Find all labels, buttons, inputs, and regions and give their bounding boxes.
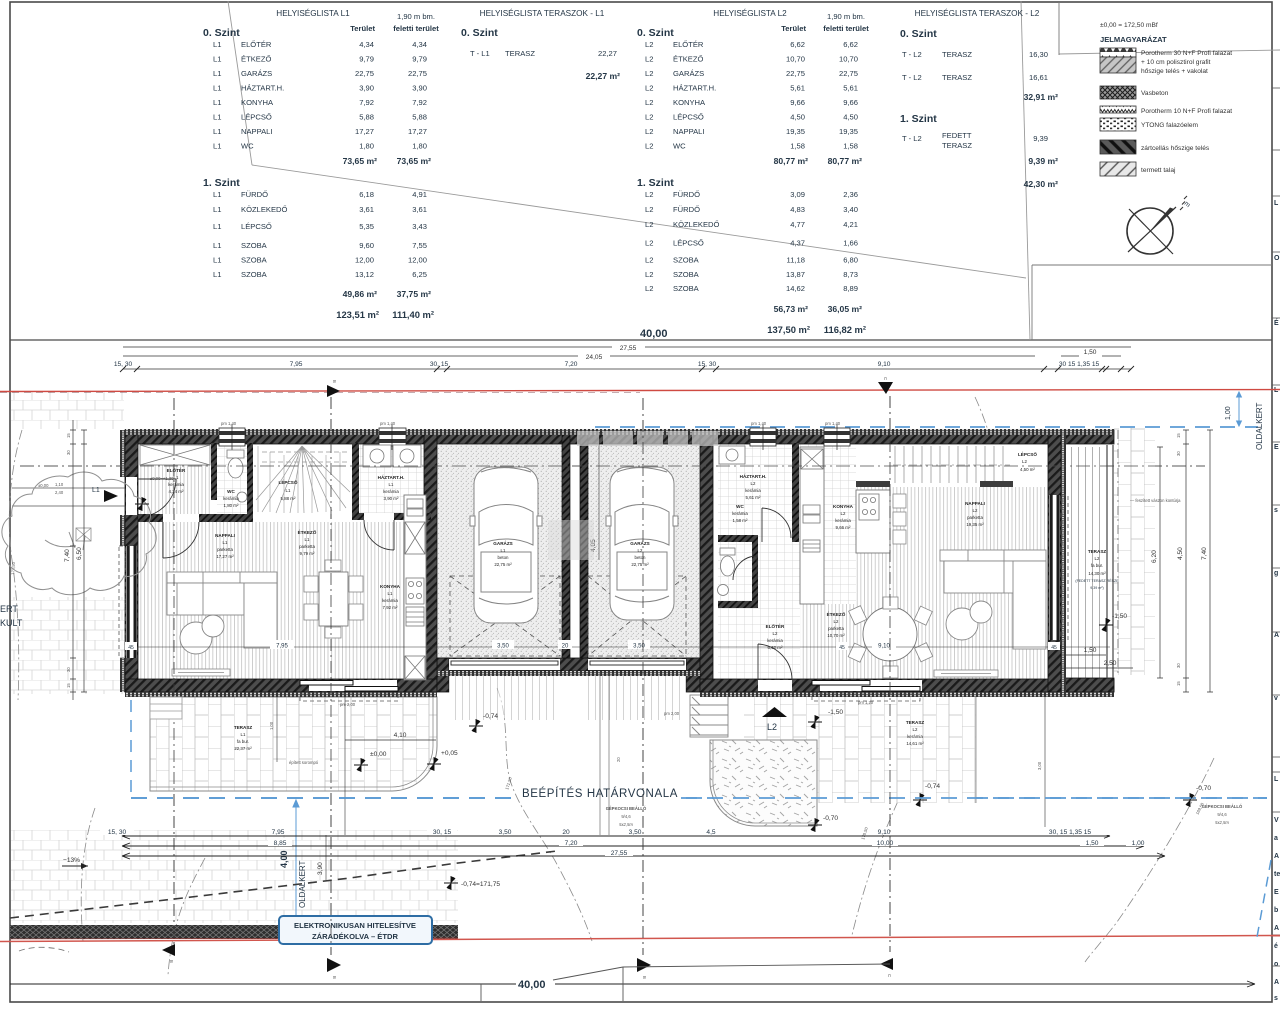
- svg-text:17,27: 17,27: [355, 127, 374, 136]
- svg-text:4,37: 4,37: [790, 239, 805, 248]
- svg-text:7,92: 7,92: [359, 98, 374, 107]
- svg-text:12,00: 12,00: [408, 256, 427, 265]
- svg-text:15: 15: [1176, 433, 1181, 438]
- svg-text:0. Szint: 0. Szint: [461, 27, 498, 39]
- svg-text:SZOBA: SZOBA: [241, 270, 268, 279]
- svg-text:22,75: 22,75: [408, 69, 427, 78]
- svg-text:20: 20: [562, 829, 570, 836]
- svg-text:4,83: 4,83: [790, 205, 805, 214]
- svg-text:TERASZ: TERASZ: [942, 141, 972, 150]
- svg-text:-1,50: -1,50: [828, 709, 843, 716]
- svg-text:L2: L2: [645, 190, 653, 199]
- svg-text:V: V: [1274, 817, 1279, 824]
- svg-text:73,65 m²: 73,65 m²: [343, 156, 378, 166]
- svg-text:3,09: 3,09: [790, 190, 805, 199]
- svg-text:137,50 m²: 137,50 m²: [767, 324, 810, 335]
- svg-text:30, 15: 30, 15: [433, 829, 452, 836]
- svg-text:4,21: 4,21: [843, 220, 858, 229]
- svg-text:15: 15: [66, 683, 71, 688]
- svg-text:L2: L2: [645, 84, 653, 93]
- svg-text:É: É: [1274, 318, 1279, 327]
- svg-text:LÉPCSŐ: LÉPCSŐ: [673, 239, 704, 248]
- svg-text:OLDALKERT: OLDALKERT: [1255, 402, 1264, 450]
- svg-text:s: s: [1274, 995, 1278, 1002]
- svg-text:L2: L2: [1095, 556, 1100, 561]
- svg-text:TERASZ: TERASZ: [942, 73, 972, 82]
- svg-text:LÉPCSŐ: LÉPCSŐ: [1018, 450, 1037, 457]
- svg-text:0. Szint: 0. Szint: [203, 27, 240, 39]
- svg-text:22,37 m²: 22,37 m²: [234, 746, 252, 751]
- svg-text:L2: L2: [1022, 459, 1027, 464]
- svg-text:L1: L1: [305, 537, 310, 542]
- svg-text:4,34 m²: 4,34 m²: [169, 489, 184, 494]
- svg-text:9,60: 9,60: [359, 241, 374, 250]
- svg-text:YTONG falazóelem: YTONG falazóelem: [1141, 122, 1199, 129]
- svg-text:20: 20: [562, 644, 569, 650]
- svg-text:9,66: 9,66: [790, 98, 805, 107]
- svg-text:6,62: 6,62: [790, 40, 805, 49]
- svg-text:4,50: 4,50: [790, 113, 805, 122]
- svg-text:Terület: Terület: [781, 24, 806, 33]
- svg-text:Vasbeton: Vasbeton: [1141, 90, 1169, 97]
- svg-text:NAPPALI: NAPPALI: [673, 127, 705, 136]
- svg-text:5,61 m²: 5,61 m²: [746, 495, 761, 500]
- svg-text:parketta: parketta: [828, 626, 844, 631]
- svg-text:ÉTKEZŐ: ÉTKEZŐ: [298, 528, 317, 535]
- svg-text:T - L2: T - L2: [902, 134, 922, 143]
- svg-text:8,73: 8,73: [843, 270, 858, 279]
- svg-text:L1: L1: [389, 482, 394, 487]
- svg-text:parketta: parketta: [217, 547, 233, 552]
- svg-text:49,86 m²: 49,86 m²: [343, 289, 378, 299]
- svg-text:+0,05: +0,05: [441, 750, 458, 757]
- svg-text:4,34: 4,34: [359, 40, 374, 49]
- svg-text:pm 2,00: pm 2,00: [664, 711, 680, 716]
- svg-text:15, 30: 15, 30: [108, 829, 127, 836]
- svg-text:Terület: Terület: [350, 24, 375, 33]
- svg-text:C: C: [887, 974, 892, 977]
- svg-text:42,30 m²: 42,30 m²: [1024, 179, 1059, 189]
- svg-text:4,34: 4,34: [412, 40, 427, 49]
- svg-text:1,80: 1,80: [412, 142, 427, 151]
- svg-text:L2: L2: [645, 69, 653, 78]
- svg-text:16,30: 16,30: [1029, 50, 1048, 59]
- svg-text:A: A: [1274, 979, 1279, 986]
- svg-text:14,62: 14,62: [786, 284, 805, 293]
- svg-text:9/4,6: 9/4,6: [621, 814, 631, 819]
- svg-text:KONYHA: KONYHA: [833, 504, 854, 509]
- svg-text:3,61: 3,61: [412, 205, 427, 214]
- svg-text:T - L2: T - L2: [902, 73, 922, 82]
- svg-text:3,90: 3,90: [359, 84, 374, 93]
- svg-text:5,88 m²: 5,88 m²: [281, 496, 296, 501]
- svg-text:7,92: 7,92: [412, 98, 427, 107]
- svg-text:L1: L1: [213, 142, 221, 151]
- svg-text:5,61: 5,61: [790, 84, 805, 93]
- svg-text:45: 45: [839, 645, 845, 651]
- svg-text:1,58 m²: 1,58 m²: [733, 518, 748, 523]
- svg-text:SZOBA: SZOBA: [241, 241, 268, 250]
- svg-text:B: B: [332, 976, 337, 979]
- svg-text:L2: L2: [645, 127, 653, 136]
- svg-text:27,55: 27,55: [620, 345, 637, 352]
- svg-text:123,51 m²: 123,51 m²: [336, 309, 379, 320]
- svg-text:TERASZ: TERASZ: [1088, 549, 1107, 554]
- svg-text:kerámia: kerámia: [732, 511, 748, 516]
- svg-text:ÉTKEZŐ: ÉTKEZŐ: [827, 610, 846, 617]
- svg-text:13,87: 13,87: [786, 270, 805, 279]
- svg-text:1,00: 1,00: [269, 721, 274, 730]
- svg-text:−13%: −13%: [63, 857, 80, 864]
- svg-text:L1: L1: [241, 732, 246, 737]
- svg-text:3,90: 3,90: [412, 84, 427, 93]
- svg-text:12,00: 12,00: [355, 256, 374, 265]
- svg-text:L1: L1: [213, 270, 221, 279]
- svg-text:L2: L2: [751, 481, 756, 486]
- svg-text:10,70: 10,70: [786, 55, 805, 64]
- svg-text:8,89: 8,89: [843, 284, 858, 293]
- svg-text:3,40: 3,40: [843, 205, 858, 214]
- svg-text:ELEKTRONIKUSAN HITELESÍTVE: ELEKTRONIKUSAN HITELESÍTVE: [294, 921, 416, 930]
- svg-text:5,88: 5,88: [359, 113, 374, 122]
- svg-text:45: 45: [128, 645, 134, 651]
- svg-text:4,77: 4,77: [790, 220, 805, 229]
- svg-text:kerámia: kerámia: [835, 518, 851, 523]
- svg-text:JELMAGYARÁZAT: JELMAGYARÁZAT: [1100, 35, 1167, 44]
- svg-text:ELŐTÉR: ELŐTÉR: [167, 466, 186, 473]
- svg-text:80,77 m²: 80,77 m²: [828, 156, 863, 166]
- svg-text:g: g: [1274, 570, 1278, 577]
- svg-text:L2: L2: [973, 508, 978, 513]
- svg-text:L2: L2: [645, 220, 653, 229]
- svg-text:16,61: 16,61: [1029, 73, 1048, 82]
- svg-text:6,50: 6,50: [76, 547, 83, 560]
- svg-text:L2: L2: [841, 511, 846, 516]
- svg-text:9/4,6: 9/4,6: [1217, 812, 1227, 817]
- svg-text:-0,74=171,75: -0,74=171,75: [461, 881, 500, 888]
- svg-text:GARÁZS: GARÁZS: [630, 540, 649, 546]
- svg-text:30 15 1,35 15: 30 15 1,35 15: [1059, 361, 1100, 368]
- svg-text:SZOBA: SZOBA: [673, 270, 700, 279]
- svg-text:T - L2: T - L2: [902, 50, 922, 59]
- svg-text:9,79: 9,79: [412, 55, 427, 64]
- svg-text:3,90 m²: 3,90 m²: [384, 496, 399, 501]
- svg-text:111,40 m²: 111,40 m²: [392, 309, 434, 320]
- svg-text:6,62: 6,62: [843, 40, 858, 49]
- svg-text:parketta: parketta: [299, 544, 315, 549]
- svg-text:L1: L1: [213, 84, 221, 93]
- svg-text:Porotherm 30 N+F Profi falazat: Porotherm 30 N+F Profi falazat: [1141, 50, 1232, 57]
- svg-text:L1: L1: [286, 488, 291, 493]
- svg-text:1,00: 1,00: [1132, 840, 1145, 847]
- svg-text:s: s: [1274, 507, 1278, 514]
- svg-text:KULT: KULT: [0, 618, 23, 628]
- svg-text:KONYHA: KONYHA: [673, 98, 706, 107]
- svg-text:TERASZ: TERASZ: [234, 725, 253, 730]
- svg-text:feletti terület: feletti terület: [393, 24, 439, 33]
- svg-text:3,50: 3,50: [629, 829, 642, 836]
- svg-text:L1: L1: [213, 113, 221, 122]
- svg-text:L2: L2: [645, 113, 653, 122]
- svg-text:kerámia: kerámia: [383, 489, 399, 494]
- svg-text:56,73 m²: 56,73 m²: [774, 304, 809, 314]
- svg-text:SZOBA: SZOBA: [673, 284, 700, 293]
- svg-text:te: te: [1274, 871, 1280, 878]
- svg-text:22,27 m²: 22,27 m²: [586, 71, 621, 81]
- svg-text:4,10: 4,10: [394, 732, 407, 739]
- svg-text:HELYISÉGLISTA TERASZOK - L2: HELYISÉGLISTA TERASZOK - L2: [915, 8, 1040, 18]
- svg-text:9,66: 9,66: [843, 98, 858, 107]
- svg-text:1. Szint: 1. Szint: [900, 113, 937, 125]
- svg-text:15: 15: [66, 433, 71, 438]
- svg-text:SZOBA: SZOBA: [241, 256, 268, 265]
- svg-text:7,20: 7,20: [565, 840, 578, 847]
- svg-text:5x2,5m: 5x2,5m: [619, 822, 633, 827]
- svg-text:A: A: [1274, 632, 1279, 639]
- svg-text:±0,00: ±0,00: [38, 483, 49, 488]
- svg-text:1,58: 1,58: [790, 142, 805, 151]
- svg-text:T - L1: T - L1: [470, 49, 490, 58]
- svg-text:GARÁZS: GARÁZS: [241, 69, 272, 78]
- svg-text:ERT: ERT: [0, 604, 18, 614]
- svg-text:kerámia: kerámia: [382, 598, 398, 603]
- svg-text:termett talaj: termett talaj: [1141, 167, 1176, 174]
- svg-text:pm 1,40: pm 1,40: [751, 421, 767, 426]
- svg-text:NAPPALI: NAPPALI: [241, 127, 273, 136]
- svg-text:L: L: [1274, 387, 1279, 394]
- svg-text:ÉTKEZŐ: ÉTKEZŐ: [241, 55, 271, 64]
- svg-text:kerámia: kerámia: [745, 488, 761, 493]
- svg-text:9,66 m²: 9,66 m²: [836, 525, 851, 530]
- svg-text:L2: L2: [645, 40, 653, 49]
- svg-text:1,90 m bm.: 1,90 m bm.: [827, 12, 865, 21]
- svg-text:KÖZLEKEDŐ: KÖZLEKEDŐ: [673, 220, 720, 229]
- svg-text:é: é: [1274, 943, 1278, 950]
- svg-text:L2: L2: [645, 284, 653, 293]
- svg-text:kerámia: kerámia: [907, 734, 923, 739]
- svg-text:KONYHA: KONYHA: [380, 584, 401, 589]
- svg-text:beton: beton: [635, 555, 647, 560]
- svg-text:22,75: 22,75: [355, 69, 374, 78]
- svg-text:15, 30: 15, 30: [698, 361, 717, 368]
- svg-text:FÜRDŐ: FÜRDŐ: [241, 190, 268, 199]
- svg-text:4,5: 4,5: [706, 829, 715, 836]
- svg-text:15, 30: 15, 30: [114, 361, 133, 368]
- svg-text:17,27: 17,27: [408, 127, 427, 136]
- svg-text:pm 1,40: pm 1,40: [825, 421, 841, 426]
- svg-text:E: E: [1274, 444, 1279, 451]
- svg-text:22,75 m²: 22,75 m²: [494, 562, 512, 567]
- svg-text:HELYISÉGLISTA L1: HELYISÉGLISTA L1: [276, 8, 350, 18]
- svg-text:19,35 m²: 19,35 m²: [966, 522, 984, 527]
- svg-text:b: b: [1274, 907, 1278, 914]
- svg-text:WC: WC: [673, 142, 686, 151]
- svg-text:10,00: 10,00: [877, 840, 894, 847]
- svg-text:9,39 m²): 9,39 m²): [1090, 586, 1103, 590]
- svg-text:FÜRDŐ: FÜRDŐ: [673, 205, 700, 214]
- svg-text:±0,00=+1,30: ±0,00=+1,30: [150, 476, 174, 481]
- svg-text:1,00: 1,00: [1225, 406, 1232, 420]
- svg-text:+ 10 cm polisztirol grafit: + 10 cm polisztirol grafit: [1141, 59, 1211, 66]
- svg-text:HELYISÉGLISTA L2: HELYISÉGLISTA L2: [713, 8, 787, 18]
- svg-text:1,66: 1,66: [843, 239, 858, 248]
- svg-text:3,50: 3,50: [633, 644, 645, 650]
- svg-text:L2: L2: [645, 270, 653, 279]
- svg-text:30: 30: [66, 450, 71, 455]
- svg-text:L1: L1: [213, 205, 221, 214]
- svg-text:40,00: 40,00: [518, 979, 546, 991]
- svg-text:7,40: 7,40: [1201, 547, 1208, 560]
- svg-text:14,30 m²: 14,30 m²: [1088, 571, 1106, 576]
- svg-text:pm 1,20: pm 1,20: [858, 700, 874, 705]
- svg-text:3,43: 3,43: [412, 222, 427, 231]
- svg-text:80,77 m²: 80,77 m²: [774, 156, 809, 166]
- svg-text:2,40: 2,40: [55, 490, 64, 495]
- svg-text:ELŐTÉR: ELŐTÉR: [241, 40, 272, 49]
- svg-text:7,40: 7,40: [64, 549, 71, 562]
- svg-text:NAPPALI: NAPPALI: [965, 501, 985, 506]
- svg-text:8,85: 8,85: [274, 840, 287, 847]
- svg-text:GÉPKOCSI BEÁLLÓ: GÉPKOCSI BEÁLLÓ: [606, 806, 647, 811]
- svg-text:NAPPALI: NAPPALI: [215, 533, 235, 538]
- svg-text:L1: L1: [213, 256, 221, 265]
- svg-text:— feszített vászon kontúrja: — feszített vászon kontúrja: [1130, 498, 1181, 503]
- svg-text:LÉPCSŐ: LÉPCSŐ: [241, 113, 272, 122]
- svg-text:1. Szint: 1. Szint: [203, 177, 240, 189]
- svg-text:0. Szint: 0. Szint: [637, 27, 674, 39]
- svg-text:L: L: [1274, 776, 1279, 783]
- svg-text:7,95: 7,95: [290, 361, 303, 368]
- svg-text:GÉPKOCSI BEÁLLÓ: GÉPKOCSI BEÁLLÓ: [1202, 804, 1243, 809]
- svg-text:LÉPCSŐ: LÉPCSŐ: [673, 113, 704, 122]
- svg-text:ÉTKEZŐ: ÉTKEZŐ: [673, 55, 703, 64]
- svg-text:±0,00 = 172,50 mBf: ±0,00 = 172,50 mBf: [1100, 22, 1158, 29]
- svg-text:22,75: 22,75: [786, 69, 805, 78]
- svg-text:FÜRDŐ: FÜRDŐ: [673, 190, 700, 199]
- svg-text:L1: L1: [223, 540, 228, 545]
- svg-text:2,50: 2,50: [1104, 660, 1117, 667]
- svg-text:GARÁZS: GARÁZS: [493, 540, 512, 546]
- svg-text:kerámia: kerámia: [223, 496, 239, 501]
- svg-text:22,75: 22,75: [839, 69, 858, 78]
- svg-text:6,62 m²: 6,62 m²: [768, 645, 783, 650]
- svg-text:A: A: [1274, 925, 1279, 932]
- svg-text:6,20: 6,20: [1151, 550, 1158, 563]
- svg-text:45: 45: [1051, 645, 1057, 651]
- svg-text:SZOBA: SZOBA: [673, 256, 700, 265]
- svg-text:1,90 m bm.: 1,90 m bm.: [397, 12, 435, 21]
- svg-text:10,70: 10,70: [839, 55, 858, 64]
- svg-text:TERASZ: TERASZ: [906, 720, 925, 725]
- svg-text:-0,74: -0,74: [483, 713, 498, 720]
- svg-text:73,65 m²: 73,65 m²: [397, 156, 432, 166]
- svg-text:L2: L2: [773, 631, 778, 636]
- svg-text:L2: L2: [913, 727, 918, 732]
- svg-text:32,91 m²: 32,91 m²: [1024, 92, 1059, 102]
- svg-text:B: B: [642, 976, 647, 979]
- svg-text:KÖZLEKEDŐ: KÖZLEKEDŐ: [241, 205, 288, 214]
- svg-text:kerámia: kerámia: [767, 638, 783, 643]
- svg-text:6,80: 6,80: [843, 256, 858, 265]
- svg-text:40,00: 40,00: [640, 328, 668, 340]
- svg-text:1,50: 1,50: [1086, 840, 1099, 847]
- svg-text:30: 30: [1176, 663, 1181, 668]
- svg-text:kerámia: kerámia: [168, 482, 184, 487]
- svg-text:L1: L1: [213, 241, 221, 250]
- svg-text:7,55: 7,55: [412, 241, 427, 250]
- svg-text:4,50 m²: 4,50 m²: [1020, 467, 1035, 472]
- svg-text:L1: L1: [213, 98, 221, 107]
- svg-text:1,58: 1,58: [843, 142, 858, 151]
- svg-text:6,18: 6,18: [359, 190, 374, 199]
- svg-text:17,27 m²: 17,27 m²: [216, 554, 234, 559]
- svg-text:7,92 m²: 7,92 m²: [383, 605, 398, 610]
- svg-text:30: 30: [1176, 451, 1181, 456]
- svg-text:TERASZ: TERASZ: [942, 50, 972, 59]
- svg-text:5,35: 5,35: [359, 222, 374, 231]
- svg-text:hőszige telés + vakolat: hőszige telés + vakolat: [1141, 68, 1208, 75]
- svg-text:épített sorompó: épített sorompó: [289, 760, 319, 765]
- svg-text:116,82 m²: 116,82 m²: [824, 324, 866, 335]
- svg-text:1,50: 1,50: [1084, 647, 1097, 654]
- svg-text:9,10: 9,10: [878, 361, 891, 368]
- svg-text:WC: WC: [736, 504, 744, 509]
- svg-text:L2: L2: [645, 98, 653, 107]
- svg-text:a: a: [1274, 835, 1278, 842]
- svg-text:19,35: 19,35: [786, 127, 805, 136]
- svg-text:L2: L2: [645, 142, 653, 151]
- svg-text:-0,70: -0,70: [1196, 785, 1211, 792]
- svg-text:zártcellás hőszige telés: zártcellás hőszige telés: [1141, 145, 1210, 152]
- svg-text:C: C: [883, 377, 888, 380]
- svg-text:L1: L1: [213, 222, 221, 231]
- svg-text:22,75 m²: 22,75 m²: [631, 562, 649, 567]
- svg-text:L1: L1: [213, 190, 221, 199]
- svg-text:10,70 m²: 10,70 m²: [827, 633, 845, 638]
- svg-text:FEDETT: FEDETT: [942, 131, 972, 140]
- svg-text:30: 30: [66, 667, 71, 672]
- svg-text:HÁZTART.H.: HÁZTART.H.: [241, 84, 284, 93]
- svg-text:3,50: 3,50: [497, 644, 509, 650]
- svg-text:1,10: 1,10: [55, 482, 64, 487]
- svg-text:L2: L2: [645, 205, 653, 214]
- svg-text:ELŐTÉR: ELŐTÉR: [673, 40, 704, 49]
- svg-text:19,35: 19,35: [839, 127, 858, 136]
- svg-text:HELYISÉGLISTA TERASZOK - L1: HELYISÉGLISTA TERASZOK - L1: [480, 8, 605, 18]
- svg-text:Porotherm 10 N+F Profi falaza: Porotherm 10 N+F Profi falazat: [1141, 108, 1232, 115]
- svg-text:L1: L1: [92, 487, 100, 494]
- svg-text:22,27: 22,27: [598, 49, 617, 58]
- svg-text:37,75 m²: 37,75 m²: [397, 289, 432, 299]
- svg-text:WC: WC: [241, 142, 254, 151]
- svg-text:L1: L1: [213, 55, 221, 64]
- svg-text:3,00: 3,00: [1037, 761, 1042, 770]
- svg-text:11,18: 11,18: [787, 256, 805, 265]
- svg-text:L2: L2: [638, 548, 643, 553]
- svg-text:13,12: 13,12: [355, 270, 374, 279]
- svg-text:TERASZ: TERASZ: [505, 49, 535, 58]
- svg-text:2,36: 2,36: [843, 190, 858, 199]
- svg-text:LÉPCSŐ: LÉPCSŐ: [241, 222, 272, 231]
- svg-text:HÁZTART.H.: HÁZTART.H.: [673, 84, 716, 93]
- svg-text:4,50: 4,50: [843, 113, 858, 122]
- svg-text:9,39: 9,39: [1033, 134, 1048, 143]
- svg-text:-0,74: -0,74: [925, 783, 940, 790]
- svg-text:L1: L1: [388, 591, 393, 596]
- svg-text:9,10: 9,10: [878, 829, 891, 836]
- svg-text:fa bur.: fa bur.: [1091, 563, 1103, 568]
- svg-text:6,25: 6,25: [412, 270, 427, 279]
